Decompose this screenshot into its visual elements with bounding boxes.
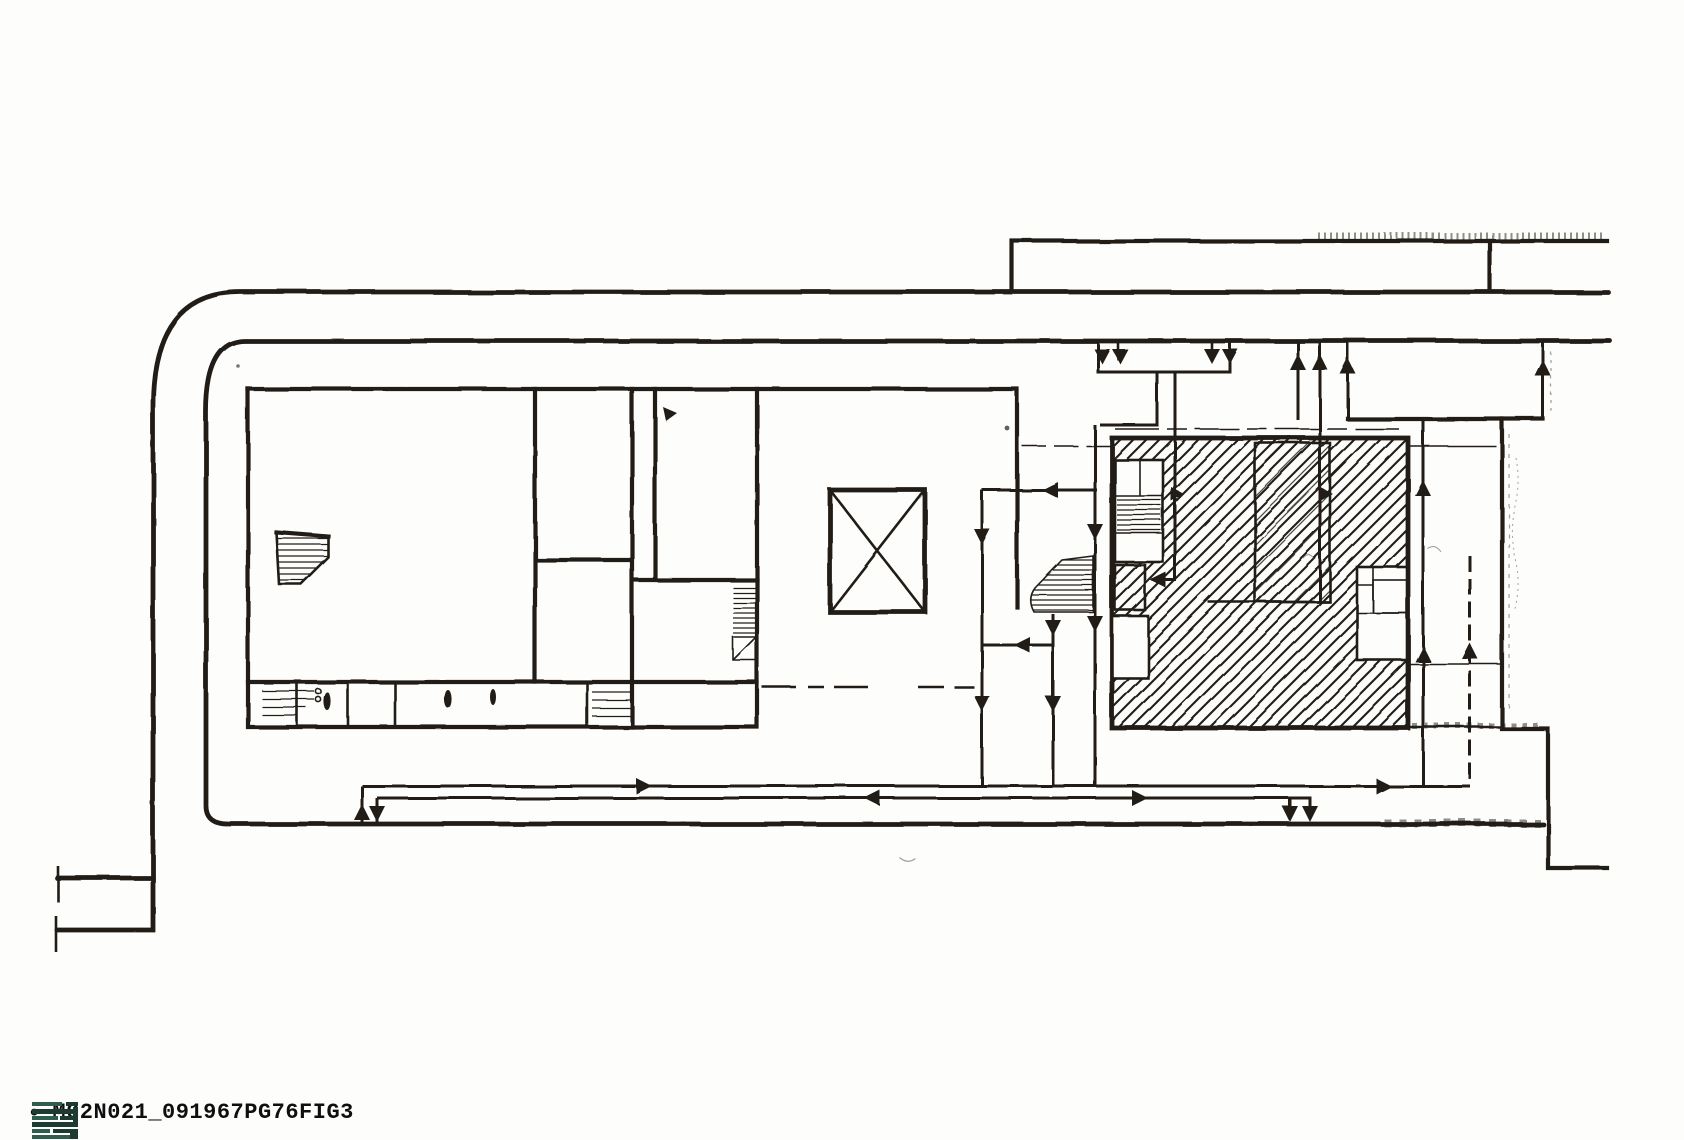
scanned-figure-page: • M02N021_091967PG76FIG3 xyxy=(0,0,1684,1140)
north-canopy-strip xyxy=(1012,236,1607,290)
flag-element xyxy=(272,532,332,584)
north-mark xyxy=(663,407,677,421)
stair-core-east xyxy=(1357,567,1407,660)
stair-core-west xyxy=(1115,460,1163,562)
west-stair xyxy=(733,588,756,660)
service-band-details xyxy=(262,688,632,716)
site-plan-drawing xyxy=(0,0,1684,1140)
ramp-symbol xyxy=(1028,556,1096,612)
courtyard xyxy=(762,490,974,687)
mid-connector xyxy=(982,392,1110,786)
figure-caption-row: • M02N021_091967PG76FIG3 xyxy=(30,1100,354,1125)
archive-logo-icon xyxy=(30,1100,82,1140)
entry-notch xyxy=(1112,616,1148,678)
south-circulation xyxy=(362,786,1470,824)
crossed-skylight-box xyxy=(830,490,925,612)
figure-caption: M02N021_091967PG76FIG3 xyxy=(52,1100,353,1125)
west-building xyxy=(248,389,1017,727)
